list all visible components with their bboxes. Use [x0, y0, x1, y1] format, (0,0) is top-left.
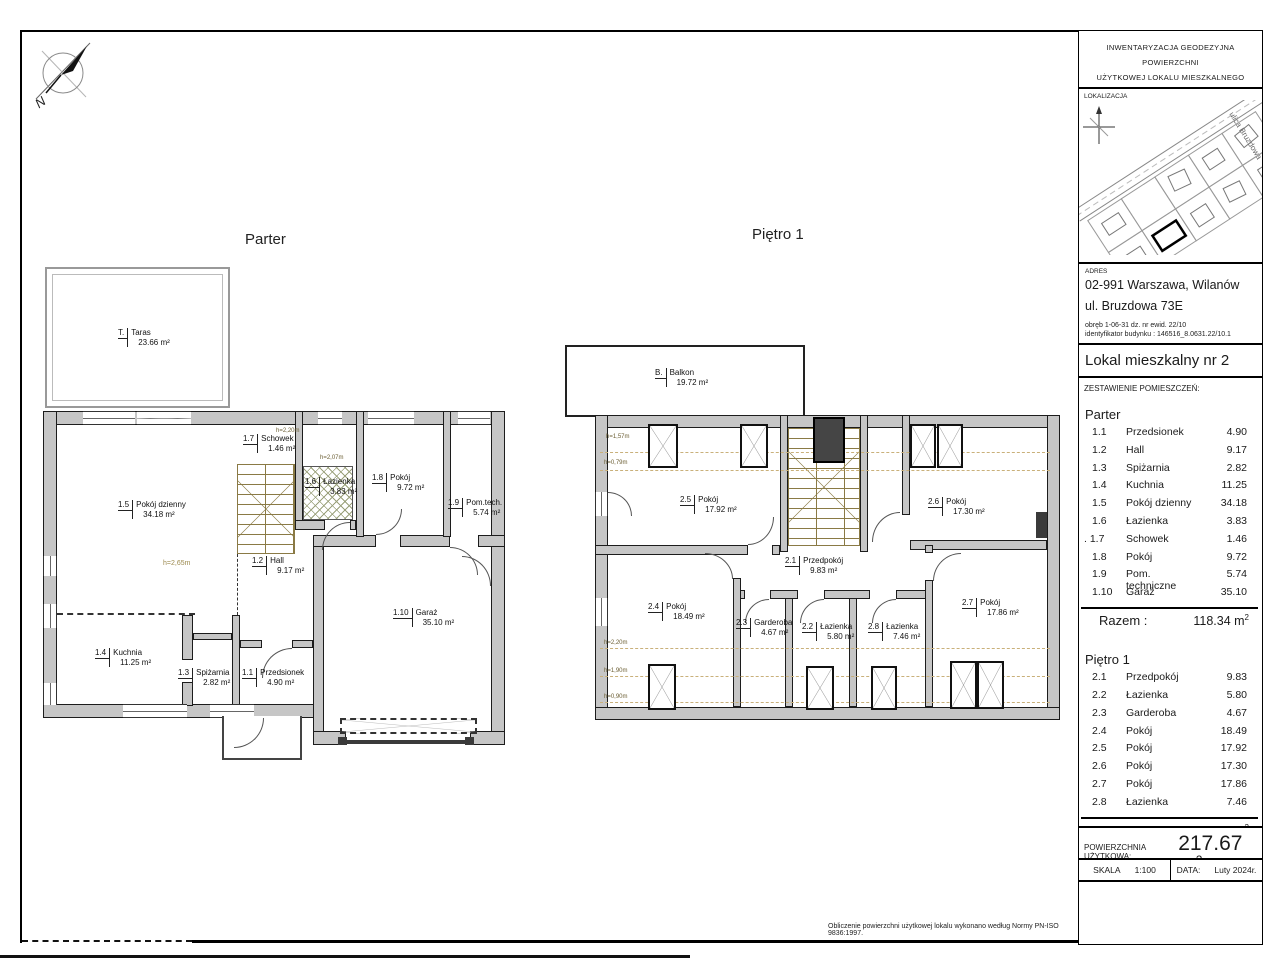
panel-header: INWENTARYZACJA GEODEZYJNA POWIERZCHNI UŻ…: [1078, 30, 1263, 88]
wall: [295, 520, 325, 530]
panel-adres: ADRES 02-991 Warszawa, Wilanów ul. Bruzd…: [1078, 263, 1263, 344]
roof-window: [977, 661, 1004, 709]
terrace-door: [137, 411, 191, 425]
wall: [443, 411, 451, 537]
room-label-kuchnia: 1.4 Kuchnia11.25 m²: [95, 648, 151, 667]
window: [368, 411, 414, 425]
roof-window: [937, 424, 963, 468]
wall: [193, 633, 232, 640]
wall: [860, 415, 868, 552]
parter-title: Parter: [245, 231, 286, 248]
room-row: . 1.7Schowek1.46: [1079, 533, 1262, 551]
window: [83, 411, 135, 425]
room-label-schowek: 1.7 Schowek1.46 m²: [243, 434, 295, 453]
room-label-balkon: B. Balkon19.72 m²: [655, 368, 708, 387]
wall: [292, 640, 313, 648]
room-label-taras: T. Taras23.66 m²: [118, 328, 170, 347]
room-row: 2.8Łazienka7.46: [1079, 796, 1262, 814]
chimney: [1036, 512, 1047, 538]
roof-window: [740, 424, 768, 468]
room-row: 2.5Pokój17.92: [1079, 742, 1262, 760]
north-compass-icon: N: [28, 35, 98, 113]
room-row: 2.7Pokój17.86: [1079, 778, 1262, 796]
room-row: 2.3Garderoba4.67: [1079, 707, 1262, 725]
wall: [313, 541, 324, 745]
sheet-border-dashed-segment: [22, 940, 192, 948]
window: [43, 604, 57, 628]
height-marker: h=0,79m: [604, 460, 628, 466]
floorplan-sheet: { "panel": { "header": { "line1": "INWEN…: [0, 0, 1280, 960]
kitchen-open-boundary: [57, 613, 195, 617]
scan-edge-artifact: [0, 955, 690, 958]
height-marker: h=2,65m: [163, 560, 190, 567]
header-line2: UŻYTKOWEJ LOKALU MIESZKALNEGO: [1079, 70, 1262, 85]
panel-rooms-summary: ZESTAWIENIE POMIESZCZEŃ: Parter 1.1Przed…: [1078, 377, 1263, 827]
room-label-garderoba: 2.3 Garderoba4.67 m²: [736, 618, 792, 637]
floor-heading-pietro: Piętro 1: [1085, 652, 1262, 667]
site-map-compass-icon: [1083, 106, 1115, 144]
wall: [232, 615, 240, 706]
svg-text:N: N: [32, 93, 49, 111]
room-label-garaz: 1.10 Garaż35.10 m²: [393, 608, 454, 627]
wall: [478, 535, 505, 547]
wall: [491, 411, 505, 745]
room-label-przedsionek: 1.1 Przedsionek4.90 m²: [242, 668, 304, 687]
room-row: 1.5Pokój dzienny34.18: [1079, 497, 1262, 515]
room-row: 1.6Łazienka3.83: [1079, 515, 1262, 533]
room-row: 1.10Garaż35.10: [1079, 586, 1262, 604]
window: [43, 556, 57, 576]
panel-total-area: POWIERZCHNIA UŻYTKOWA: 217.67 m2: [1078, 827, 1263, 859]
wall: [770, 590, 798, 599]
room-label-lazienka: 1.6 Łazienka3.83 m²: [305, 477, 357, 496]
room-label-pom-tech: 1.9 Pom.tech.5.74 m²: [448, 498, 502, 517]
wall: [925, 545, 933, 553]
room-row: 1.4Kuchnia11.25: [1079, 479, 1262, 497]
header-line1: INWENTARYZACJA GEODEZYJNA POWIERZCHNI: [1079, 40, 1262, 70]
site-map: ulica Bruzdowa: [1079, 100, 1262, 255]
room-row: 1.2Hall9.17: [1079, 444, 1262, 462]
height-marker: h=2,07m: [320, 455, 344, 461]
wall: [925, 580, 933, 707]
panel-empty-box: [1078, 881, 1263, 945]
razem-row-parter: Razem : 118.34 m2: [1081, 607, 1258, 628]
floor-heading-parter: Parter: [1085, 407, 1262, 422]
room-label-lazienka-28: 2.8 Łazienka7.46 m²: [868, 622, 920, 641]
room-label-pokoj-24: 2.4 Pokój18.49 m²: [648, 602, 705, 621]
room-row: 1.8Pokój9.72: [1079, 551, 1262, 569]
height-marker: h=1,90m: [604, 668, 628, 674]
address-building-id: identyfikator budynku : 146516_8.0631.22…: [1085, 331, 1262, 338]
open-boundary: [237, 554, 239, 615]
roof-window: [806, 666, 834, 710]
scale-cell: SKALA1:100: [1079, 860, 1170, 880]
wall: [356, 411, 364, 537]
adres-label: ADRES: [1079, 264, 1262, 275]
total-area-value: 217.67 m2: [1178, 833, 1258, 859]
unit-label: Lokal mieszkalny nr 2: [1079, 345, 1262, 369]
lokalizacja-label: LOKALIZACJA: [1079, 89, 1262, 100]
room-row: 1.1Przedsionek4.90: [1079, 426, 1262, 444]
room-label-pokoj-dzienny: 1.5 Pokój dzienny34.18 m²: [118, 500, 186, 519]
wall: [240, 640, 262, 648]
room-label-pokoj-27: 2.7 Pokój17.86 m²: [962, 598, 1019, 617]
panel-unit: Lokal mieszkalny nr 2: [1078, 344, 1263, 377]
room-label-pokoj-26: 2.6 Pokój17.30 m²: [928, 497, 985, 516]
room-label-pokoj-25: 2.5 Pokój17.92 m²: [680, 495, 737, 514]
address-street: ul. Bruzdowa 73E: [1085, 299, 1262, 313]
room-row: 2.4Pokój18.49: [1079, 725, 1262, 743]
room-label-spizarnia: 1.3 Spiżarnia2.82 m²: [178, 668, 230, 687]
room-row: 2.6Pokój17.30: [1079, 760, 1262, 778]
roof-window: [871, 666, 897, 710]
stairs: [237, 464, 295, 554]
sheet-border: [20, 30, 1261, 943]
roof-window: [950, 661, 977, 709]
height-marker: h=2,20m: [604, 640, 628, 646]
wall: [902, 415, 910, 515]
room-row: 2.1Przedpokój9.83: [1079, 671, 1262, 689]
pietro-title: Piętro 1: [752, 226, 804, 243]
room-row: 1.9Pom. techniczne5.74: [1079, 568, 1262, 586]
room-label-lazienka-22: 2.2 Łazienka5.80 m²: [802, 622, 854, 641]
height-marker: h=0,90m: [604, 694, 628, 700]
roof-height-line: [600, 470, 1050, 471]
window: [318, 411, 342, 425]
garage-door-post: [465, 737, 474, 745]
roof-window: [910, 424, 936, 468]
window: [458, 411, 490, 425]
wall: [849, 598, 857, 707]
garage-door-post: [338, 737, 347, 745]
razem-row-pietro: Razem : 99.33 m2: [1081, 817, 1258, 828]
panel-meta: SKALA1:100 DATA:Luty 2024r.: [1078, 859, 1263, 881]
room-label-hall: 1.2 Hall9.17 m²: [252, 556, 304, 575]
roof-height-line: [600, 648, 1050, 649]
calculation-note: Obliczenie powierzchni użytkowej lokalu …: [828, 923, 1078, 937]
window: [595, 492, 608, 516]
roof-window: [648, 424, 678, 468]
wall: [733, 578, 741, 707]
wall: [350, 520, 356, 530]
panel-lokalizacja: LOKALIZACJA ulica Bruzdowa: [1078, 88, 1263, 263]
wall: [595, 545, 748, 555]
room-label-przedpokoj: 2.1 Przedpokój9.83 m²: [785, 556, 843, 575]
highlighted-building: [1152, 221, 1185, 251]
room-row: 1.3Spiżarnia2.82: [1079, 462, 1262, 480]
wall: [1047, 415, 1060, 720]
address-obreb: obręb 1-06-31 dz. nr ewid. 22/10: [1085, 322, 1262, 329]
total-area-label: POWIERZCHNIA UŻYTKOWA:: [1084, 843, 1178, 859]
address-city: 02-991 Warszawa, Wilanów: [1085, 278, 1262, 292]
garage-door-sill: [345, 740, 473, 744]
room-label-pokoj: 1.8 Pokój9.72 m²: [372, 473, 424, 492]
window: [595, 598, 608, 626]
street-name: ulica Bruzdowa: [1227, 110, 1262, 161]
wall: [785, 598, 793, 707]
wall: [824, 590, 870, 599]
room-row: 2.2Łazienka5.80: [1079, 689, 1262, 707]
roof-window: [648, 664, 676, 710]
wall: [182, 615, 193, 660]
wall: [772, 545, 780, 555]
height-marker: h=1,57m: [606, 434, 630, 440]
garage-door: [340, 718, 477, 734]
summary-label: ZESTAWIENIE POMIESZCZEŃ:: [1079, 378, 1262, 393]
wall: [780, 415, 788, 552]
window: [43, 683, 57, 705]
window: [123, 704, 187, 718]
stair-window: [813, 417, 845, 463]
date-cell: DATA:Luty 2024r.: [1170, 860, 1262, 880]
